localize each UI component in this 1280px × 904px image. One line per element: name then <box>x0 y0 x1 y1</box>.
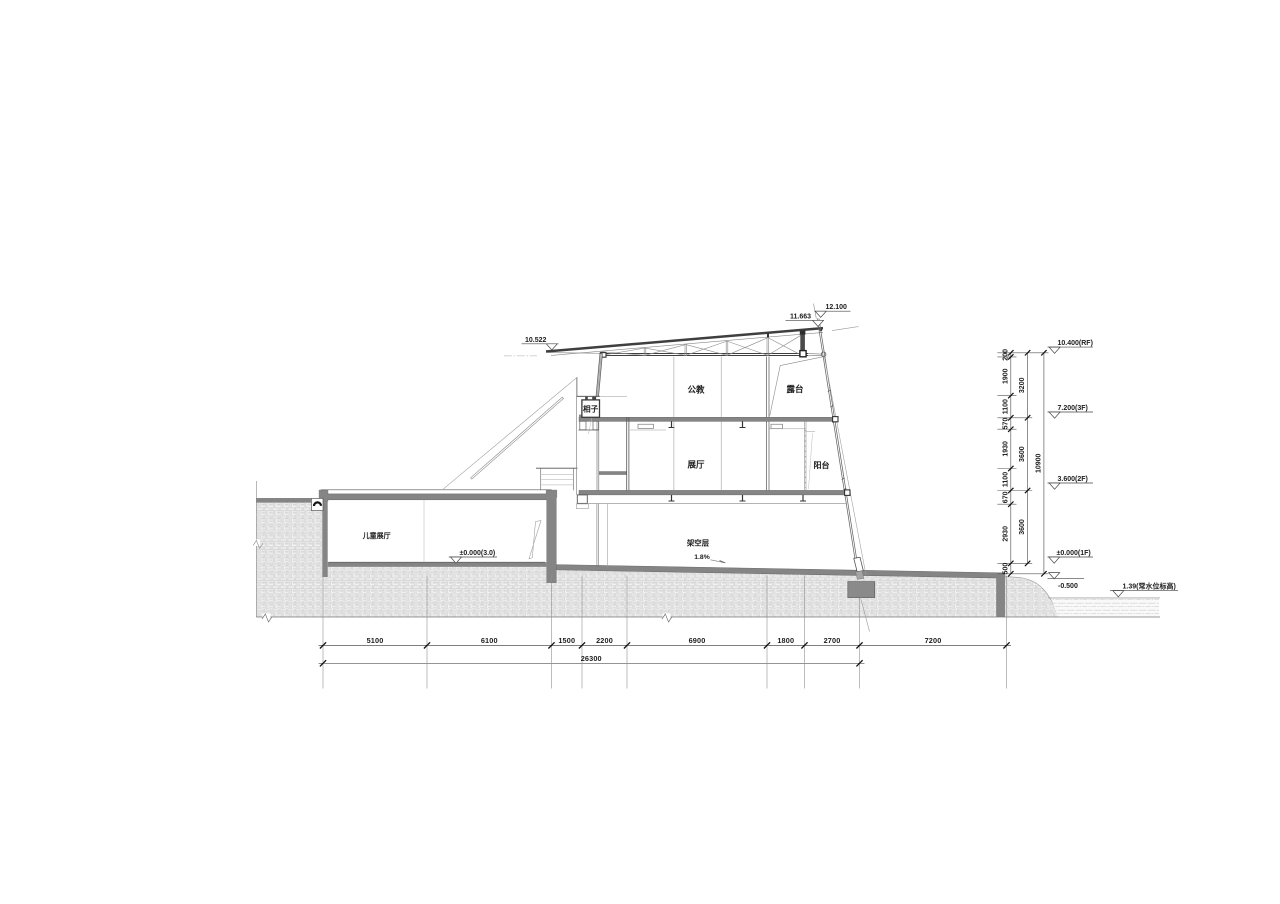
svg-text:阳台: 阳台 <box>814 460 830 470</box>
svg-text:670: 670 <box>1002 491 1009 503</box>
svg-text:3600: 3600 <box>1019 519 1026 535</box>
svg-text:±0.000(3.0): ±0.000(3.0) <box>460 550 496 557</box>
svg-text:10.522: 10.522 <box>525 337 547 344</box>
svg-text:7.200(3F): 7.200(3F) <box>1058 405 1088 412</box>
svg-text:3.600(2F): 3.600(2F) <box>1058 476 1088 483</box>
svg-text:公教: 公教 <box>687 385 705 395</box>
svg-text:5100: 5100 <box>367 636 384 645</box>
svg-text:1100: 1100 <box>1002 399 1009 414</box>
svg-text:1900: 1900 <box>1002 368 1009 384</box>
svg-text:1500: 1500 <box>558 636 575 645</box>
svg-text:1800: 1800 <box>777 636 794 645</box>
svg-text:2200: 2200 <box>596 636 613 645</box>
svg-text:7200: 7200 <box>925 636 942 645</box>
svg-text:200: 200 <box>1002 349 1009 361</box>
svg-text:1100: 1100 <box>1002 472 1009 487</box>
svg-text:12.100: 12.100 <box>826 304 848 311</box>
svg-text:相子: 相子 <box>583 404 599 414</box>
svg-text:1930: 1930 <box>1002 441 1009 457</box>
svg-text:3600: 3600 <box>1019 446 1026 462</box>
svg-text:10900: 10900 <box>1036 453 1043 473</box>
svg-text:儿童展厅: 儿童展厅 <box>362 531 391 540</box>
svg-text:展厅: 展厅 <box>686 460 705 470</box>
svg-text:10.400(RF): 10.400(RF) <box>1058 340 1093 347</box>
svg-text:2930: 2930 <box>1002 526 1009 542</box>
svg-text:1.8%: 1.8% <box>694 554 710 561</box>
svg-text:570: 570 <box>1002 418 1009 430</box>
svg-text:2700: 2700 <box>824 636 841 645</box>
svg-text:-0.500: -0.500 <box>1058 583 1078 590</box>
svg-text:3200: 3200 <box>1019 377 1026 393</box>
svg-text:6100: 6100 <box>481 636 498 645</box>
svg-text:26300: 26300 <box>581 654 602 663</box>
svg-text:500: 500 <box>1002 563 1009 575</box>
svg-text:架空层: 架空层 <box>686 539 710 548</box>
svg-text:±0.000(1F): ±0.000(1F) <box>1057 550 1091 557</box>
svg-text:6900: 6900 <box>689 636 706 645</box>
svg-text:露台: 露台 <box>786 384 804 394</box>
svg-text:1.39(常水位标高): 1.39(常水位标高) <box>1123 582 1176 591</box>
svg-text:11.663: 11.663 <box>790 313 811 320</box>
